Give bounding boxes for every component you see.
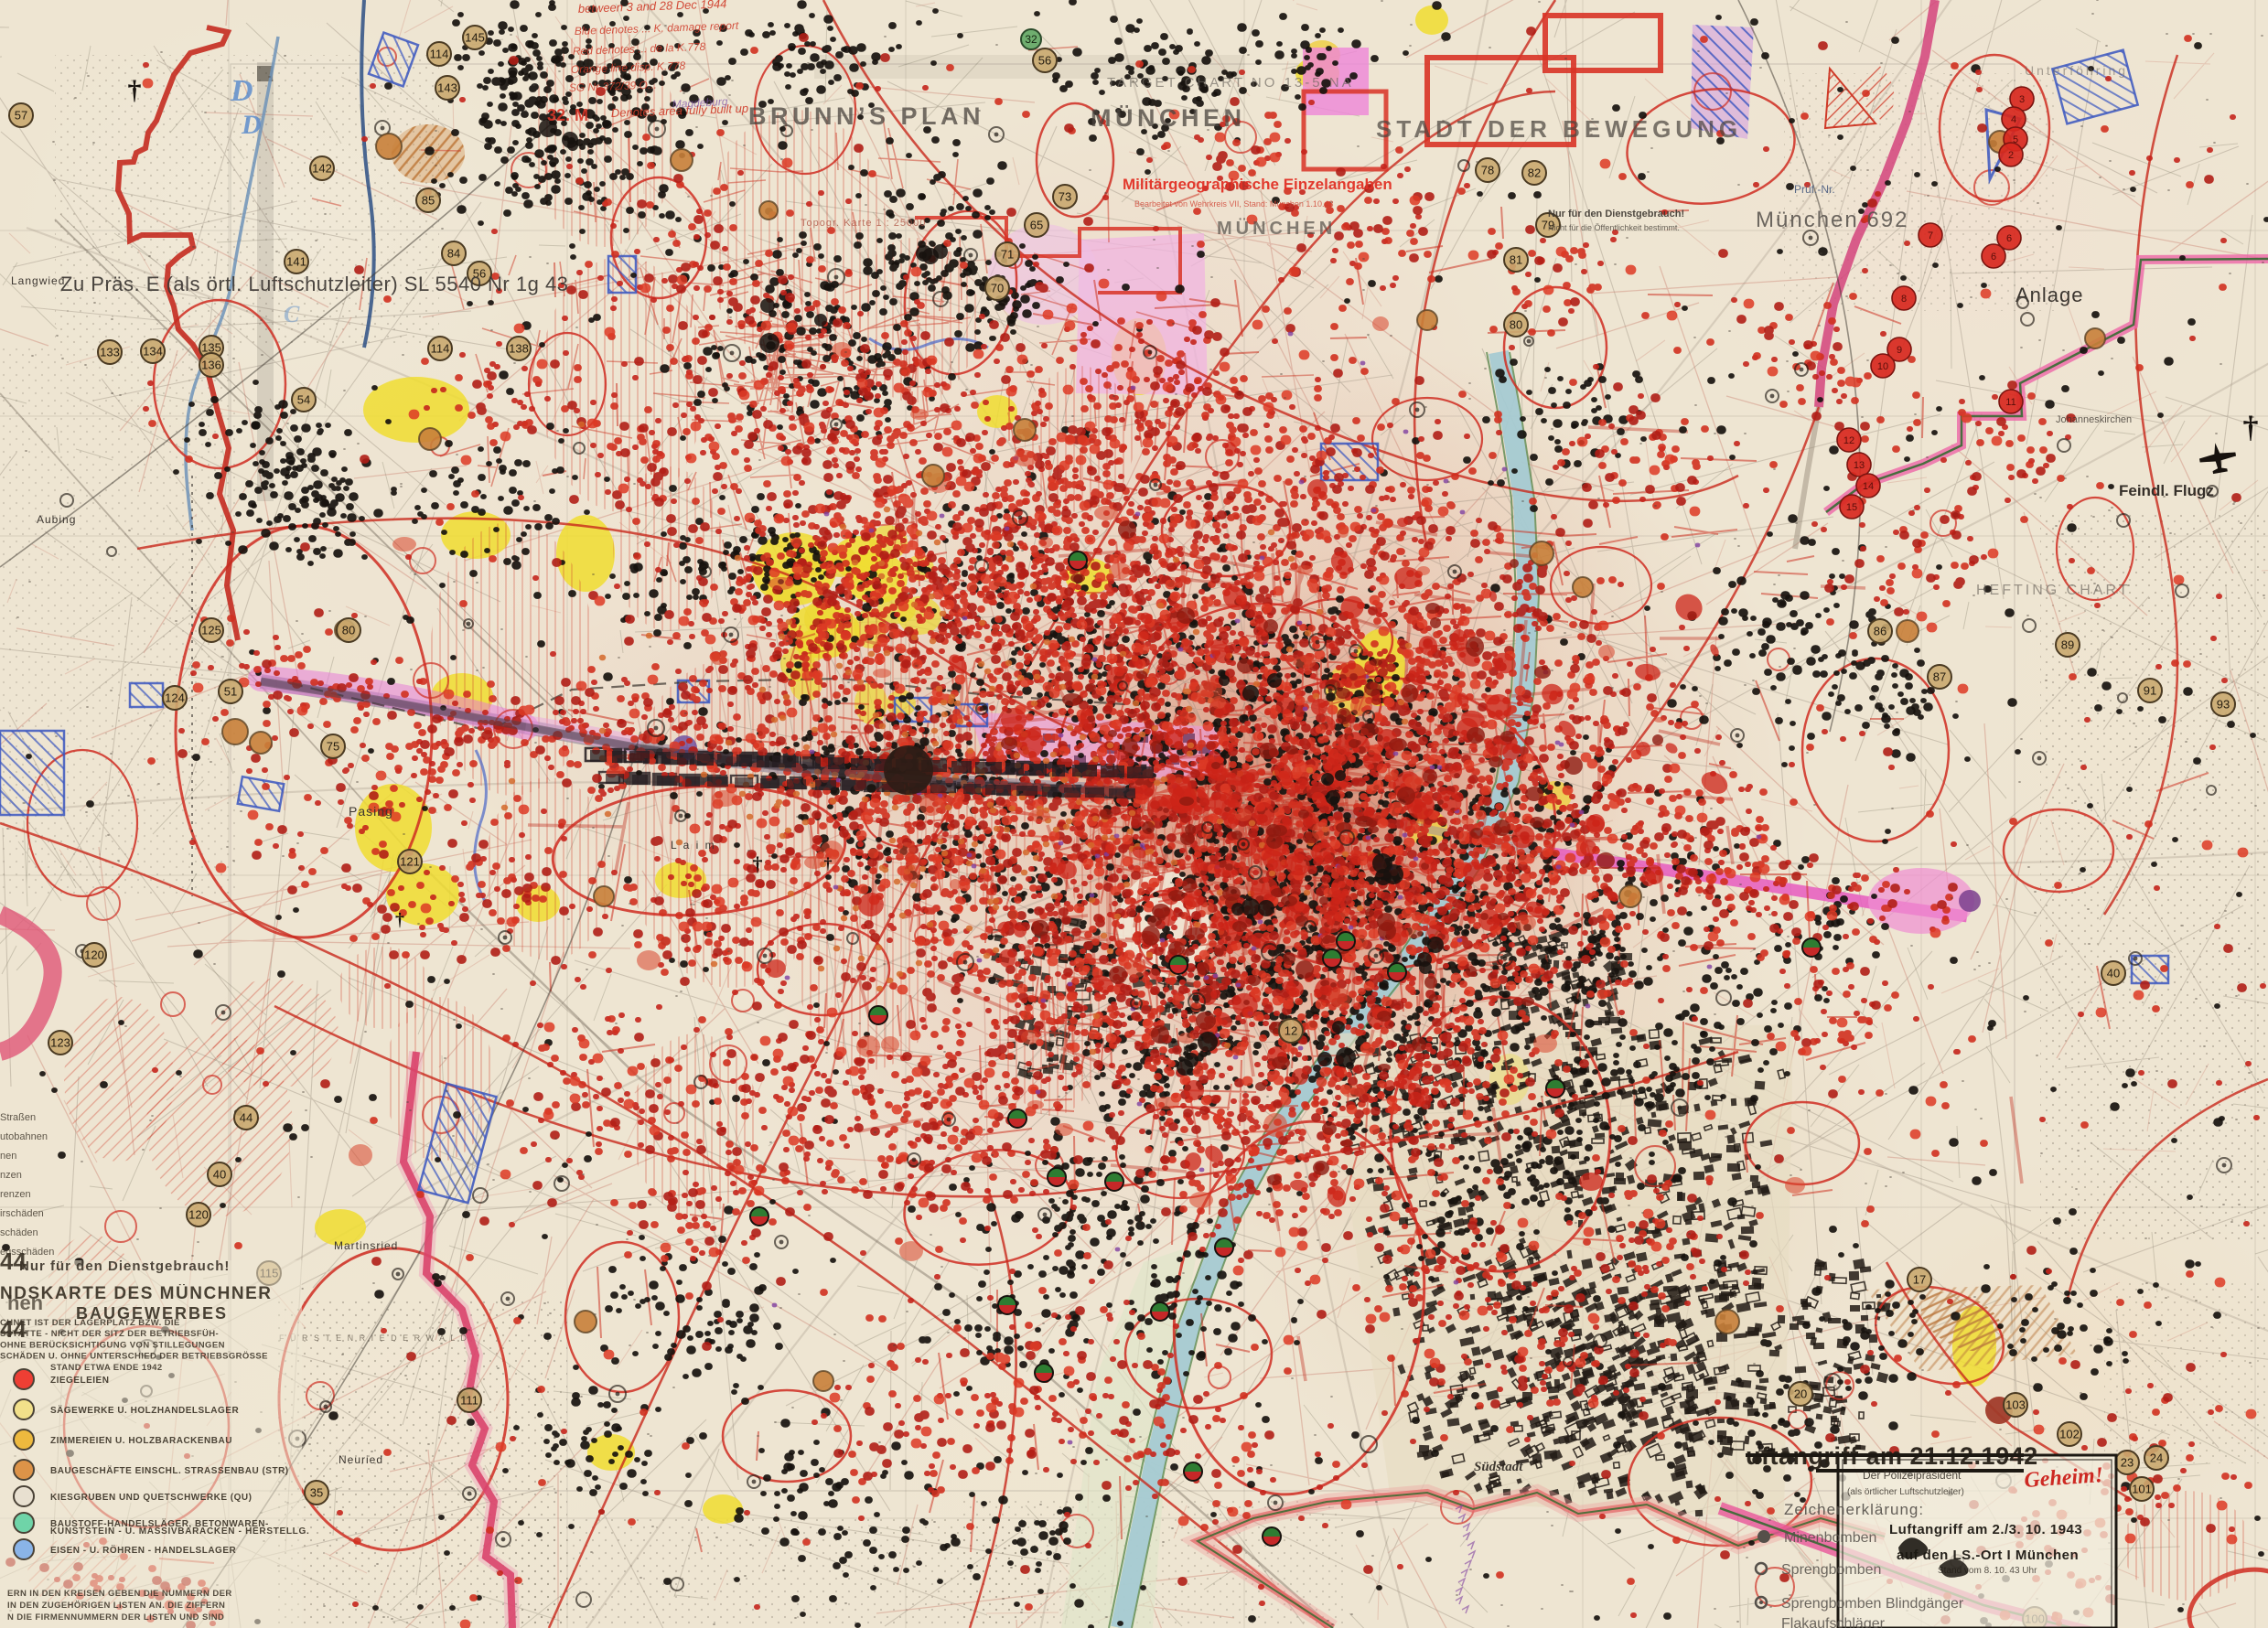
svg-text:87: 87: [1933, 670, 1946, 684]
svg-text:32. M: 32. M: [547, 106, 588, 124]
svg-text:Minenbomben: Minenbomben: [1784, 1530, 1876, 1546]
svg-text:93: 93: [2217, 698, 2230, 712]
svg-text:TARGET CHART NO 13-5 NA: TARGET CHART NO 13-5 NA: [1107, 75, 1354, 91]
svg-text:Prüf.-Nr.: Prüf.-Nr.: [1794, 183, 1835, 196]
svg-text:STAND ETWA ENDE 1942: STAND ETWA ENDE 1942: [50, 1363, 163, 1373]
svg-text:85: 85: [422, 194, 435, 208]
svg-text:BRUNN’S PLAN: BRUNN’S PLAN: [748, 102, 984, 130]
svg-text:Nur für den Dienstgebrauch!: Nur für den Dienstgebrauch!: [19, 1258, 230, 1274]
svg-text:Militärgeographische Einzelang: Militärgeographische Einzelangaben: [1123, 176, 1392, 193]
svg-text:44: 44: [240, 1111, 253, 1125]
svg-text:L a i m: L a i m: [671, 839, 716, 851]
svg-text:SCHÄDEN U. OHNE UNTERSCHIED DE: SCHÄDEN U. OHNE UNTERSCHIED DER BETRIEBS…: [0, 1352, 268, 1362]
svg-text:STADT DER BEWEGUNG: STADT DER BEWEGUNG: [1376, 115, 1742, 143]
svg-text:80: 80: [1510, 318, 1522, 332]
svg-text:56: 56: [1038, 54, 1051, 68]
svg-text:23: 23: [2121, 1456, 2134, 1470]
svg-text:Sprengbomben Blindgänger: Sprengbomben Blindgänger: [1781, 1596, 1964, 1612]
svg-text:136: 136: [201, 359, 221, 372]
svg-text:4: 4: [2011, 114, 2016, 125]
svg-text:20: 20: [1794, 1387, 1807, 1401]
svg-text:Luftangriff am 2./3. 10. 194: Luftangriff am 2./3. 10. 1943: [1889, 1522, 2082, 1537]
svg-text:134: 134: [143, 345, 163, 359]
svg-text:hen: hen: [7, 1291, 43, 1314]
svg-text:BAUGESCHÄFTE EINSCHL. STRASSE: BAUGESCHÄFTE EINSCHL. STRASSENBAU (STR): [50, 1464, 289, 1476]
svg-text:133: 133: [100, 346, 120, 359]
svg-text:ZIEGELEIEN: ZIEGELEIEN: [50, 1376, 109, 1386]
svg-text:ERN IN DEN KREISEN GEBEN DIE N: ERN IN DEN KREISEN GEBEN DIE NUMMERN DER: [7, 1589, 232, 1599]
svg-text:nen: nen: [0, 1151, 16, 1162]
svg-text:C: C: [284, 301, 300, 327]
svg-text:86: 86: [1874, 625, 1886, 638]
svg-text:17: 17: [1913, 1273, 1926, 1287]
svg-text:103: 103: [2005, 1398, 2026, 1412]
svg-text:F Ü R S T E N R I E D E R W A: F Ü R S T E N R I E D E R W A L D: [279, 1333, 468, 1343]
svg-text:Nicht für die Öffentlichkeit b: Nicht für die Öffentlichkeit bestimmt.: [1548, 223, 1680, 232]
svg-text:111: 111: [460, 1394, 478, 1408]
svg-text:102: 102: [2059, 1428, 2080, 1441]
svg-text:schäden: schäden: [0, 1227, 38, 1238]
svg-text:145: 145: [465, 31, 485, 45]
svg-text:82: 82: [1528, 166, 1541, 180]
svg-text:MÜNCHEN: MÜNCHEN: [1217, 218, 1336, 239]
svg-text:KUNSTSTEIN - U. MASSIVBARACKEN: KUNSTSTEIN - U. MASSIVBARACKEN - HERSTEL…: [50, 1526, 309, 1537]
svg-text:70: 70: [991, 282, 1004, 295]
svg-text:51: 51: [224, 685, 237, 699]
svg-text:141: 141: [286, 255, 306, 269]
svg-text:78: 78: [1481, 164, 1494, 177]
svg-text:Bearbeitet von Wehrkreis VII,: Bearbeitet von Wehrkreis VII, Stand: Mün…: [1134, 199, 1333, 209]
svg-text:KIESGRUBEN UND QUETSCHWERKE: KIESGRUBEN UND QUETSCHWERKE (QU): [50, 1493, 252, 1503]
svg-text:81: 81: [1510, 253, 1522, 267]
svg-text:SSTÄTTE - NICHT DER SITZ DER B: SSTÄTTE - NICHT DER SITZ DER BETRIEBSFÜH…: [0, 1329, 219, 1339]
svg-text:35: 35: [310, 1486, 323, 1500]
svg-text:89: 89: [2061, 638, 2074, 652]
svg-text:Johanneskirchen: Johanneskirchen: [2056, 414, 2132, 425]
svg-text:32: 32: [1025, 33, 1037, 46]
svg-text:Der Polizeipräsident: Der Polizeipräsident: [1863, 1469, 1962, 1482]
svg-text:114: 114: [431, 342, 450, 356]
svg-text:121: 121: [400, 855, 420, 869]
svg-text:Anlage: Anlage: [2015, 284, 2084, 306]
svg-text:142: 142: [312, 162, 332, 176]
svg-text:80: 80: [342, 624, 355, 637]
svg-text:101: 101: [2132, 1483, 2152, 1496]
svg-text:†: †: [128, 75, 142, 105]
svg-text:10: 10: [1877, 361, 1888, 372]
svg-text:Straßen: Straßen: [0, 1112, 36, 1123]
svg-text:†: †: [753, 852, 763, 875]
svg-text:12: 12: [1843, 435, 1854, 446]
svg-text:71: 71: [1001, 248, 1014, 262]
svg-text:Zeichenerklärung:: Zeichenerklärung:: [1784, 1501, 1924, 1518]
svg-text:Flakaufschläger: Flakaufschläger: [1781, 1616, 1886, 1628]
svg-text:75: 75: [327, 740, 339, 754]
svg-text:D: D: [230, 74, 253, 108]
svg-text:nzen: nzen: [0, 1170, 22, 1181]
svg-text:Topogr. Karte 1 : 25000: Topogr. Karte 1 : 25000: [801, 218, 926, 229]
svg-text:Feindl. Flugz: Feindl. Flugz: [2119, 482, 2214, 499]
svg-text:3: 3: [2019, 94, 2025, 105]
svg-text:138: 138: [509, 342, 529, 356]
svg-text:9: 9: [1897, 345, 1902, 356]
svg-text:IN DEN ZUGEHÖRIGEN LISTEN AN.: IN DEN ZUGEHÖRIGEN LISTEN AN. DIE ZIFFER…: [7, 1601, 225, 1611]
svg-text:12: 12: [1284, 1024, 1297, 1038]
svg-text:120: 120: [188, 1208, 209, 1222]
svg-text:40: 40: [2107, 967, 2120, 980]
svg-text:Zu Präs. E (als örtl. Luftschu: Zu Präs. E (als örtl. Luftschutzleiter) …: [60, 273, 568, 295]
svg-text:N DIE FIRMENNUMMERN DER LISTEN: N DIE FIRMENNUMMERN DER LISTEN UND SIND: [7, 1612, 224, 1623]
svg-text:40: 40: [213, 1168, 226, 1182]
svg-text:†: †: [395, 910, 404, 930]
svg-text:†: †: [2243, 411, 2259, 444]
svg-text:143: 143: [437, 81, 457, 95]
svg-text:Martinsried: Martinsried: [334, 1239, 398, 1252]
svg-text:57: 57: [15, 109, 27, 123]
svg-text:HEFTING CHART: HEFTING CHART: [1976, 583, 2130, 598]
svg-text:MÜNCHEN: MÜNCHEN: [1091, 104, 1246, 132]
svg-text:EISEN - U. RÖHREN - HANDELSLAG: EISEN - U. RÖHREN - HANDELSLAGER: [50, 1544, 237, 1556]
svg-text:6: 6: [2006, 233, 2012, 244]
svg-text:13: 13: [1854, 460, 1865, 471]
svg-text:Pasing: Pasing: [349, 804, 393, 819]
svg-text:Sprengbomben: Sprengbomben: [1781, 1562, 1881, 1578]
svg-text:renzen: renzen: [0, 1189, 31, 1200]
svg-text:ZIMMEREIEN U. HOLZBARACKENBAU: ZIMMEREIEN U. HOLZBARACKENBAU: [50, 1436, 232, 1446]
svg-text:Langwied: Langwied: [11, 274, 65, 287]
svg-text:84: 84: [447, 247, 460, 261]
svg-text:utobahnen: utobahnen: [0, 1131, 48, 1142]
svg-text:114: 114: [430, 48, 449, 61]
svg-text:8: 8: [1901, 294, 1907, 305]
svg-text:Neuried: Neuried: [339, 1453, 383, 1466]
svg-text:SÄGEWERKE U. HOLZHANDELSLAGER: SÄGEWERKE U. HOLZHANDELSLAGER: [50, 1404, 239, 1416]
svg-text:(als örtlicher Luftschutzleite: (als örtlicher Luftschutzleiter): [1847, 1487, 1964, 1497]
svg-text:München 692: München 692: [1756, 208, 1908, 232]
svg-text:OHNE BERÜCKSICHTIGUNG VON STIL: OHNE BERÜCKSICHTIGUNG VON STILLEGUNGEN: [0, 1340, 225, 1350]
svg-text:123: 123: [50, 1036, 70, 1050]
svg-text:54: 54: [297, 393, 310, 407]
svg-text:91: 91: [2144, 684, 2156, 698]
svg-text:egsschäden: egsschäden: [0, 1247, 54, 1258]
svg-text:15: 15: [1846, 502, 1857, 513]
svg-text:24: 24: [2150, 1451, 2163, 1465]
svg-text:73: 73: [1059, 190, 1071, 204]
svg-text:Nur für den Dienstgebrauch!: Nur für den Dienstgebrauch!: [1548, 209, 1684, 220]
svg-text:CHNET IST DER LAGERPLATZ BZW.: CHNET IST DER LAGERPLATZ BZW. DIE: [0, 1318, 180, 1328]
svg-text:irschäden: irschäden: [0, 1208, 44, 1219]
svg-text:Aubing: Aubing: [37, 513, 76, 526]
svg-text:6: 6: [1991, 252, 1996, 262]
svg-text:124: 124: [165, 691, 185, 705]
svg-text:2: 2: [2008, 150, 2014, 161]
svg-text:125: 125: [201, 624, 221, 637]
svg-text:Südstadt: Südstadt: [1474, 1460, 1523, 1474]
svg-text:7: 7: [1928, 230, 1933, 241]
svg-text:D: D: [241, 110, 262, 140]
svg-text:Unterföhring: Unterföhring: [2025, 63, 2128, 78]
svg-text:11: 11: [2005, 397, 2015, 408]
svg-text:120: 120: [84, 948, 104, 962]
svg-text:65: 65: [1030, 219, 1043, 232]
svg-text:†: †: [824, 854, 833, 873]
svg-text:14: 14: [1863, 481, 1874, 492]
